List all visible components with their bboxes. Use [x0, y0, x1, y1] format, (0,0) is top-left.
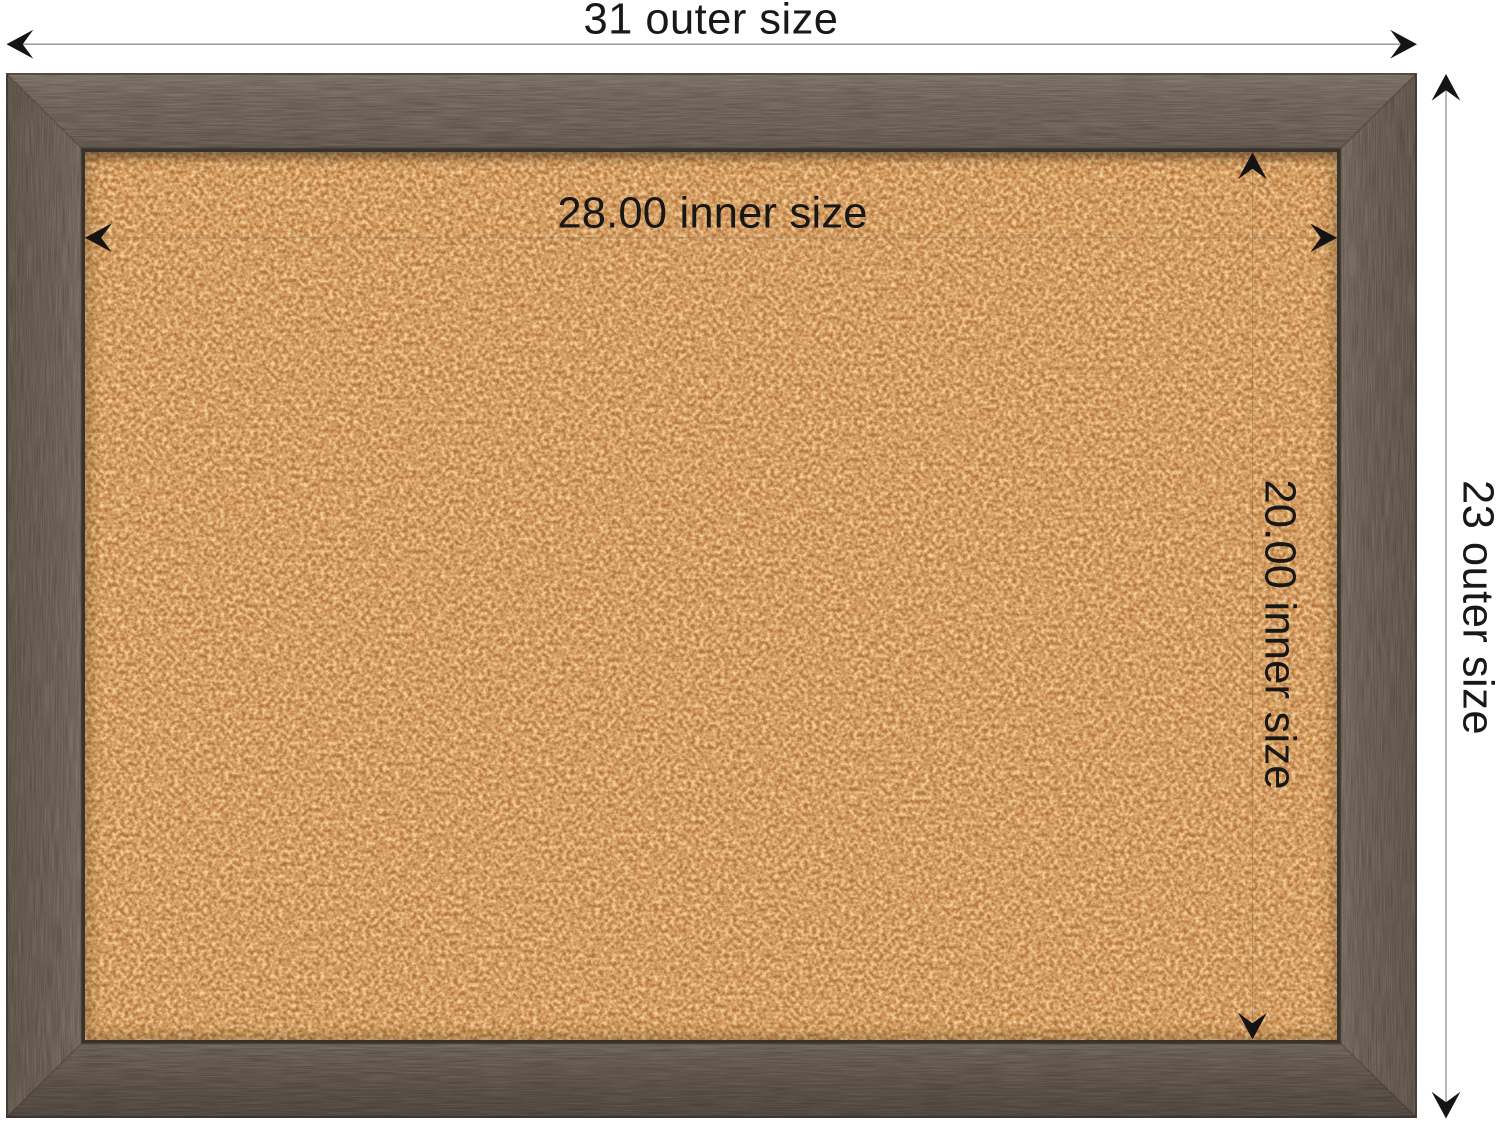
svg-text:31 outer size: 31 outer size [584, 0, 839, 44]
svg-text:28.00 inner size: 28.00 inner size [557, 190, 867, 238]
svg-text:20.00 inner size: 20.00 inner size [1256, 479, 1304, 789]
svg-text:23 outer size: 23 outer size [1454, 480, 1500, 735]
